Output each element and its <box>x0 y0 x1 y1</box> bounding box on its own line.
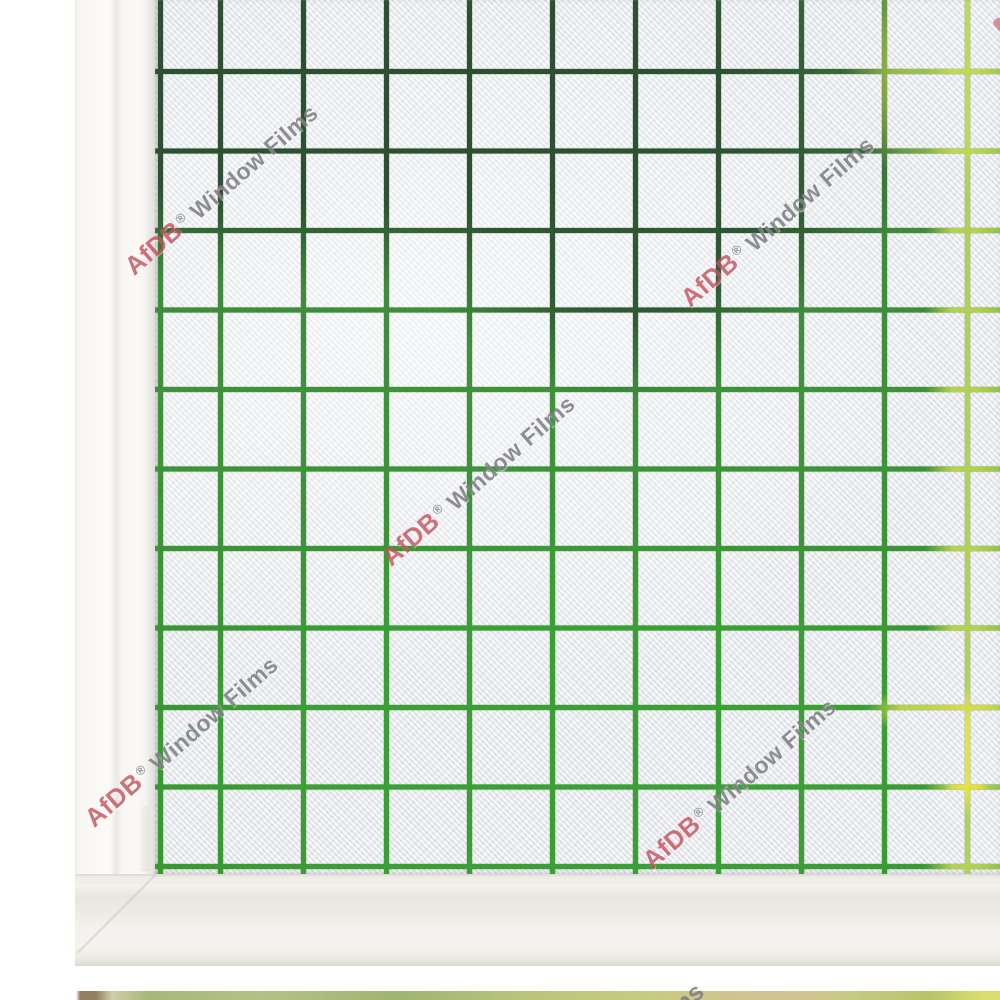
product-photo-window-film: Films AfDB®Window FilmsAfDB®Window Films… <box>0 0 1000 1000</box>
next-image-strip <box>0 991 1000 1000</box>
frame-inner-lip-detail <box>141 806 149 870</box>
frosted-glass-pane <box>155 0 1000 876</box>
film-grid-lines-colored <box>155 0 1000 876</box>
window-frame-bottom <box>75 874 1000 966</box>
